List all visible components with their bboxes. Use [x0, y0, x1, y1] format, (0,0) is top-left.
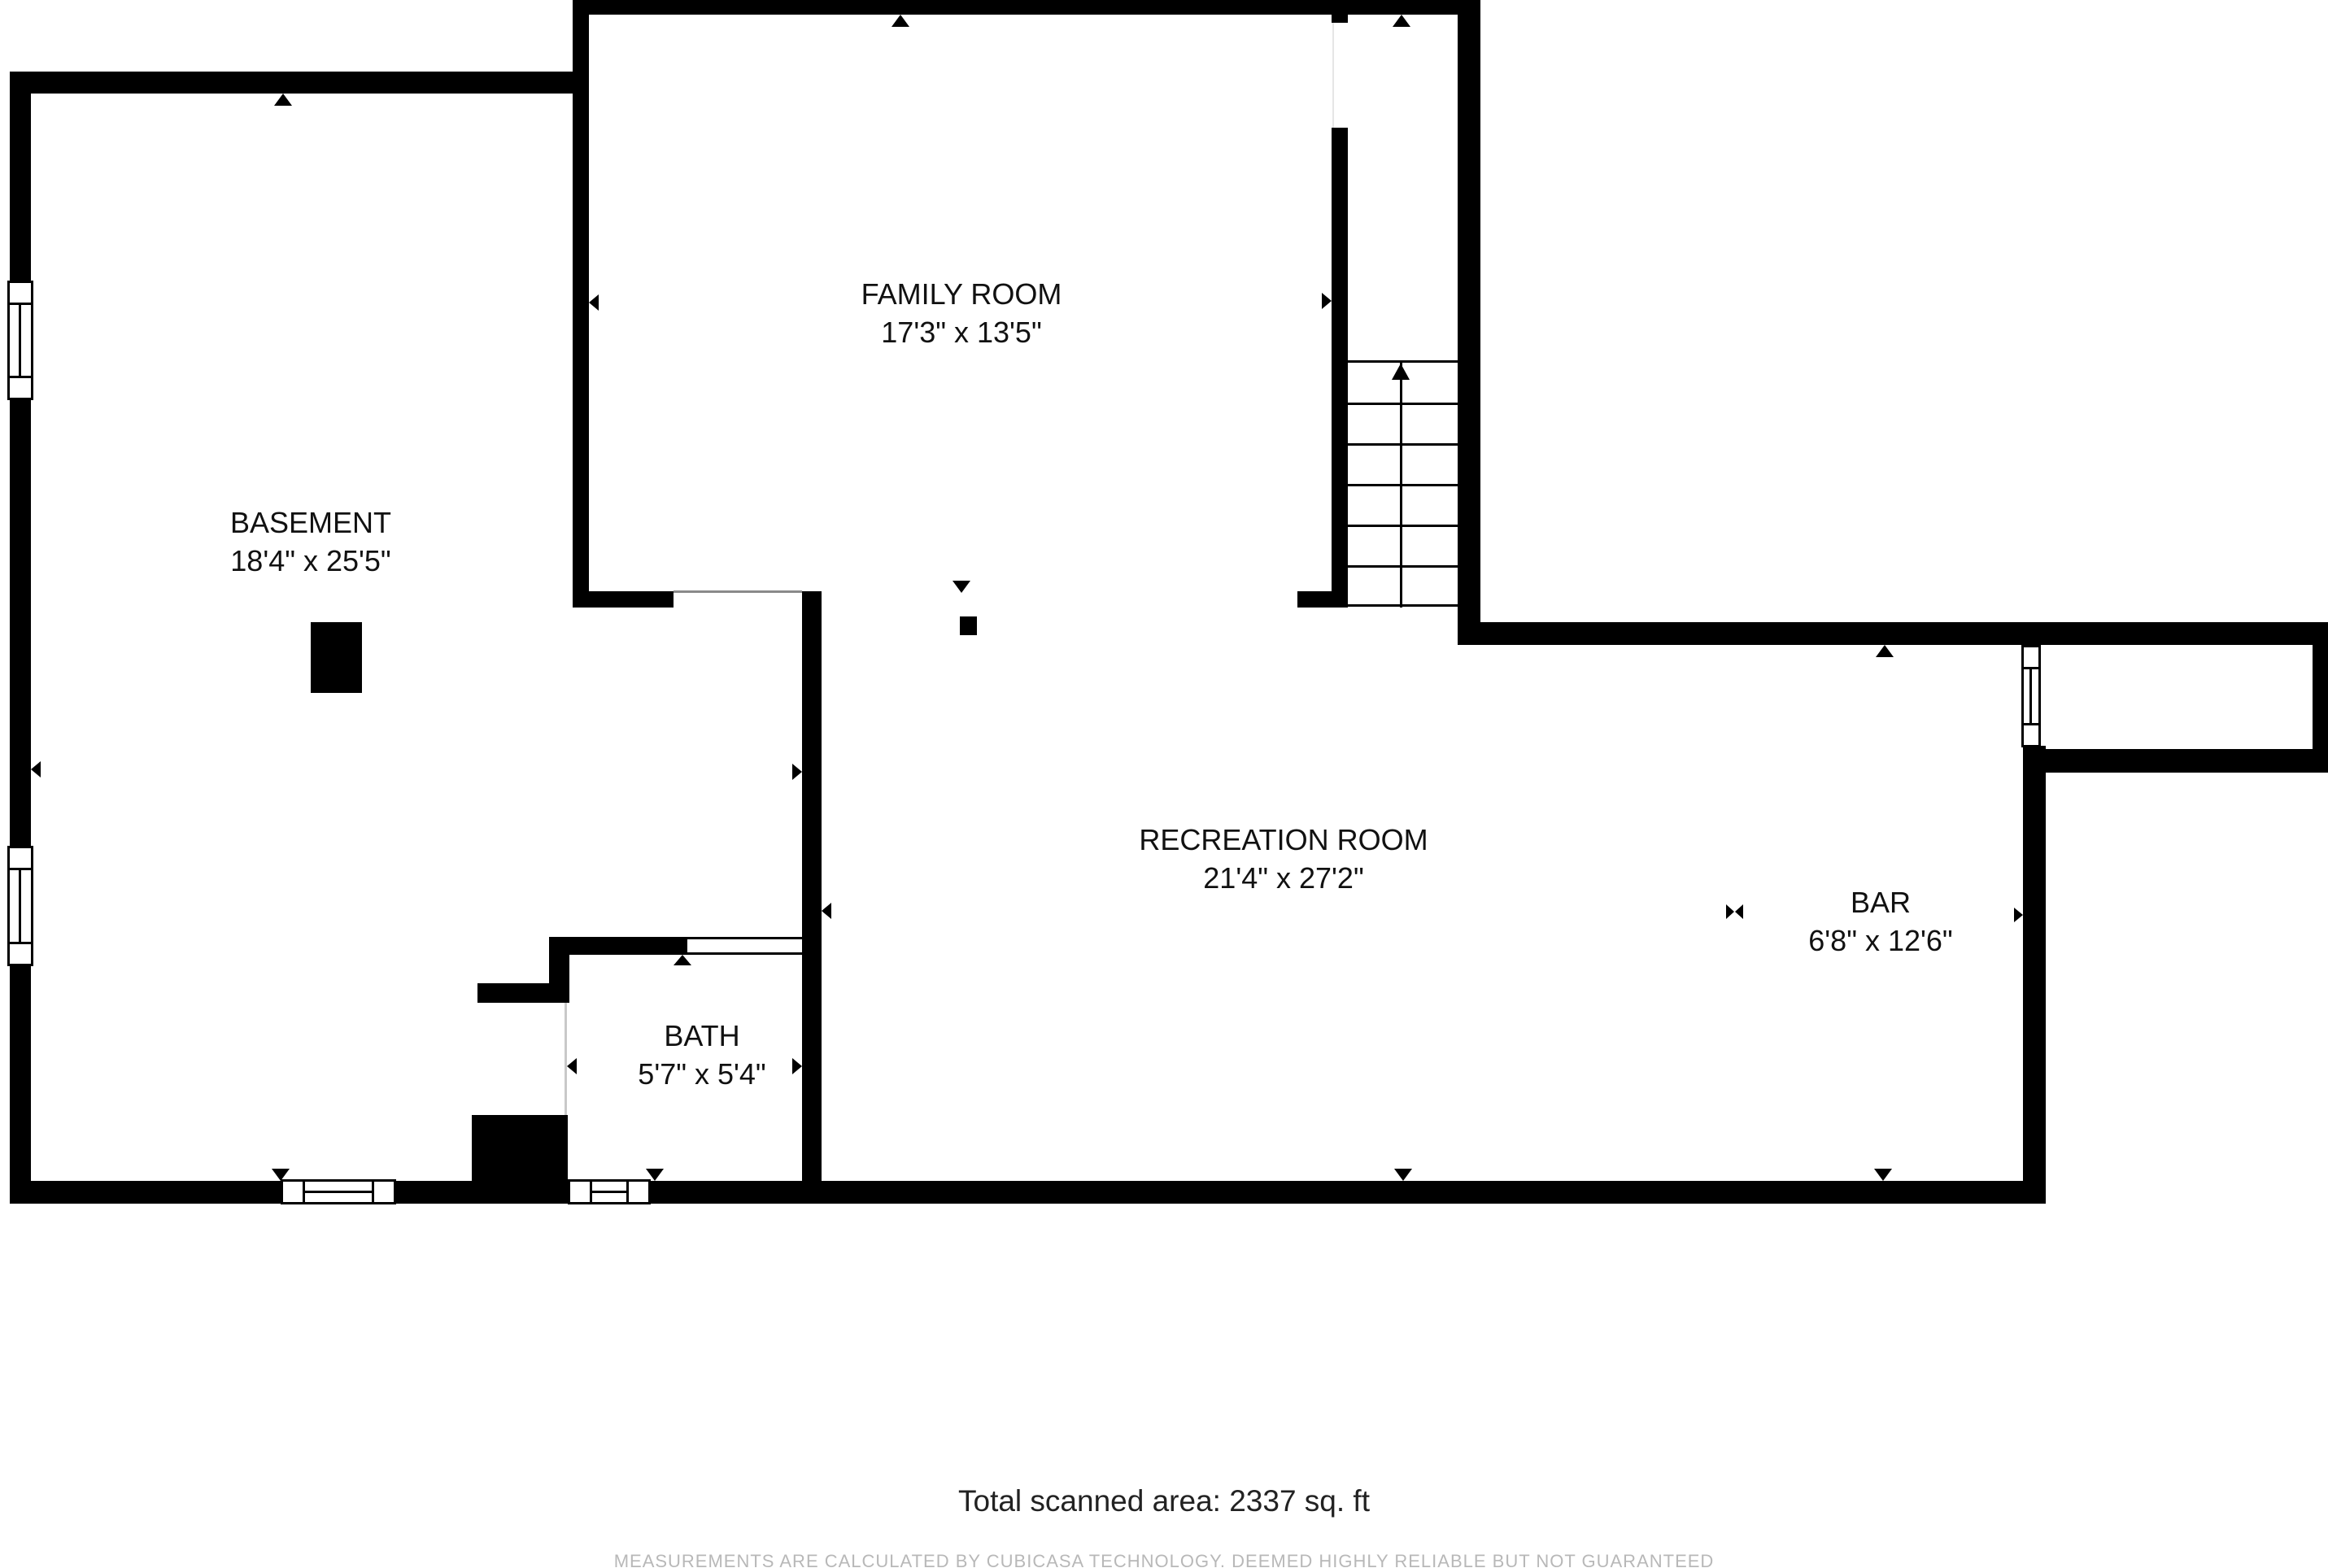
room-dimensions: 21'4" x 27'2" [1139, 859, 1428, 897]
window-frame-cap [372, 1182, 374, 1202]
disclaimer-text: MEASUREMENTS ARE CALCULATED BY CUBICASA … [614, 1551, 1715, 1568]
bath-window-bottom [568, 1179, 651, 1204]
stair-tread-line [1348, 443, 1458, 446]
room-dimensions: 17'3" x 13'5" [861, 313, 1062, 351]
direction-marker-left-icon [822, 903, 831, 919]
room-label-recreation-room: RECREATION ROOM21'4" x 27'2" [1139, 821, 1428, 897]
stair-tread-line [1348, 604, 1458, 607]
rec-room-right-wall [2023, 746, 2046, 1204]
bath-top-wall [549, 937, 687, 955]
direction-marker-right-icon [792, 764, 802, 780]
stair-tread-line [1348, 565, 1458, 568]
direction-marker-left-icon [567, 1058, 577, 1074]
total-scanned-area-text: Total scanned area: 2337 sq. ft [958, 1484, 1370, 1518]
window-pane-line [19, 305, 21, 376]
room-dimensions: 6'8" x 12'6" [1808, 921, 1952, 960]
room-label-bath: BATH5'7" x 5'4" [638, 1017, 765, 1093]
direction-marker-up-icon [1876, 645, 1894, 657]
direction-marker-right-icon [1726, 904, 1734, 919]
direction-marker-right-icon [2014, 908, 2023, 922]
bath-door-opening [687, 937, 802, 955]
room-name: BASEMENT [230, 503, 391, 542]
direction-marker-down-icon [953, 581, 970, 593]
window-frame-cap [626, 1182, 629, 1202]
stair-tread-line [1348, 525, 1458, 527]
rec-room-post [960, 616, 977, 635]
window-frame-cap [10, 942, 31, 944]
stair-tread-line [1348, 403, 1458, 405]
direction-marker-up-icon [274, 94, 292, 106]
family-room-bottom-wall [573, 591, 674, 608]
room-name: BATH [638, 1017, 765, 1055]
direction-marker-left-icon [589, 294, 599, 311]
stair-center-line [1400, 360, 1402, 608]
bath-corner-block [472, 1115, 568, 1204]
direction-marker-right-icon [792, 1058, 802, 1074]
bar-alcove-bottom-wall [2039, 749, 2328, 773]
basement-post [311, 622, 362, 693]
direction-marker-left-icon [1735, 904, 1743, 919]
basement-window-left-lower [7, 846, 33, 966]
room-name: FAMILY ROOM [861, 275, 1062, 313]
direction-marker-down-icon [1394, 1169, 1412, 1181]
stairwell-door-line [1332, 23, 1334, 128]
bar-alcove-right-wall [2313, 645, 2328, 749]
basement-window-left-upper [7, 281, 33, 400]
room-label-bar: BAR6'8" x 12'6" [1808, 883, 1952, 960]
stair-up-arrow-icon [1392, 364, 1410, 380]
basement-window-bottom [281, 1179, 396, 1204]
window-pane-line [2029, 669, 2032, 723]
rec-room-top-wall [1458, 622, 2328, 645]
exterior-left-wall [10, 72, 31, 1204]
family-rec-open-boundary [674, 590, 802, 593]
window-frame-cap [10, 376, 31, 378]
room-label-family-room: FAMILY ROOM17'3" x 13'5" [861, 275, 1062, 351]
floor-plan-canvas: Total scanned area: 2337 sq. ft MEASUREM… [0, 0, 2328, 1568]
room-dimensions: 5'7" x 5'4" [638, 1055, 765, 1093]
direction-marker-right-icon [1322, 293, 1332, 309]
basement-rec-divider-wall [802, 591, 822, 1181]
stair-tread-line [1348, 360, 1458, 363]
room-name: RECREATION ROOM [1139, 821, 1428, 859]
room-name: BAR [1808, 883, 1952, 921]
stairwell-left-wall-stub [1332, 15, 1348, 23]
direction-marker-left-icon [31, 761, 41, 777]
window-pane-line [592, 1191, 626, 1193]
bar-window-right [2021, 645, 2041, 747]
window-pane-line [19, 870, 21, 942]
basement-top-wall [10, 72, 573, 94]
stairwell-bottom-stub [1297, 591, 1344, 608]
stair-tread-line [1348, 484, 1458, 486]
direction-marker-up-icon [1393, 15, 1410, 27]
stairwell-left-wall [1332, 128, 1348, 608]
room-label-basement: BASEMENT18'4" x 25'5" [230, 503, 391, 580]
room-dimensions: 18'4" x 25'5" [230, 542, 391, 580]
direction-marker-up-icon [892, 15, 909, 27]
bath-side-door-line [565, 1003, 567, 1115]
window-frame-cap [2024, 723, 2038, 725]
direction-marker-up-icon [674, 955, 691, 965]
direction-marker-down-icon [1874, 1169, 1892, 1181]
stairwell-right-wall [1458, 0, 1480, 645]
family-room-top-wall [573, 0, 1480, 15]
bath-left-stub-wall [477, 983, 569, 1003]
family-room-left-wall [573, 0, 589, 608]
window-pane-line [305, 1191, 372, 1193]
